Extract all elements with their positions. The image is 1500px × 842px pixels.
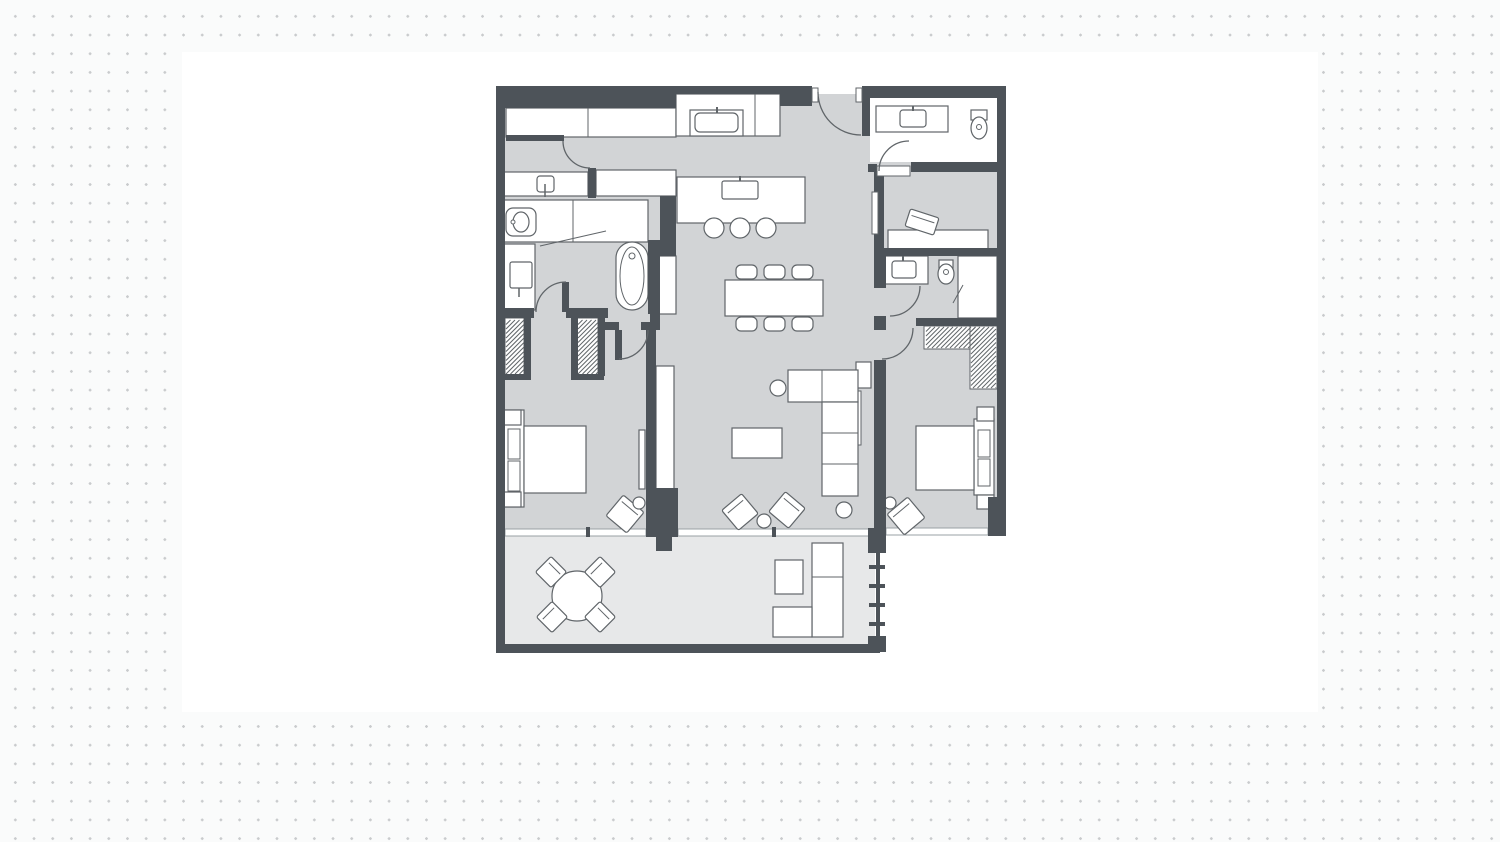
wall-powder-left (862, 98, 870, 136)
closet4-interior (970, 326, 997, 389)
kitchen-counter-left (506, 108, 676, 137)
wall-pillar (646, 488, 678, 537)
dining-chair (736, 265, 757, 279)
window-tick (772, 527, 776, 537)
balcony-screen-bottom-block (868, 636, 886, 652)
bed1-mattress (524, 426, 586, 493)
floor-lamp (770, 380, 786, 396)
cooktop-inner (695, 113, 738, 132)
balcony-screen-top-block (868, 533, 886, 553)
bed2-cushion (978, 459, 990, 486)
wall-closet2-right (598, 318, 605, 376)
bath2-sink (892, 261, 916, 278)
entry-door-frame (856, 88, 862, 102)
wall-laundry-div (588, 168, 596, 198)
wall-top-deep (496, 92, 676, 108)
floor-plan (0, 0, 1500, 842)
sofa-chaise (822, 402, 858, 496)
wall-closet2-foot (571, 374, 604, 380)
wall-bath1-door-right (566, 308, 608, 318)
wall-closet1-foot (503, 374, 531, 380)
wall-top-chunk (780, 92, 812, 106)
dining-chair (792, 317, 813, 331)
balcony-screen-rung (869, 565, 885, 569)
wall-top-right (862, 86, 1006, 98)
powder-sink (900, 110, 926, 127)
outdoor-side-table (775, 560, 803, 594)
bed2-nightstand (977, 407, 994, 421)
dining-chair (736, 317, 757, 331)
wall-hall-bath2 (874, 248, 997, 256)
shower-fixture (510, 262, 532, 288)
wall-bedroom1-door-right (641, 322, 656, 330)
wall-bedroom2-se-block (988, 497, 1006, 536)
side-table (757, 514, 771, 528)
tv-console (656, 366, 674, 490)
wall-hall-left (506, 135, 564, 141)
wall-terrace-bottom (496, 644, 880, 653)
balcony-screen-rung (869, 603, 885, 607)
bed1-cushion (508, 461, 520, 491)
wall-bath2-bottom (916, 318, 997, 326)
wall-bath1-door-left (505, 308, 534, 318)
wall-powder-bottom-left (868, 164, 877, 172)
wall-bedroom1-door-left (604, 322, 619, 330)
bar-stool (730, 218, 750, 238)
bedroom1-side-table (633, 497, 645, 509)
bed2-cushion (978, 430, 990, 457)
window-tick (586, 527, 590, 537)
bath2-shower (958, 256, 997, 318)
coffee-table (732, 428, 782, 458)
layer-windows (505, 527, 988, 537)
bed1-nightstand (504, 492, 521, 507)
bedroom1-door-leaf (615, 330, 622, 360)
bath2-toilet-flush (944, 270, 949, 275)
powder-door-leaf (877, 166, 910, 176)
bed1-nightstand (504, 410, 521, 425)
bar-stool (756, 218, 776, 238)
bathtub-drain (629, 253, 635, 259)
dining-chair (792, 265, 813, 279)
balcony-screen-rung (869, 584, 885, 588)
island-sink (722, 181, 758, 199)
hall-pocket-door (872, 192, 878, 234)
dining-chair (764, 317, 785, 331)
dining-chair (764, 265, 785, 279)
bar-stool (704, 218, 724, 238)
wall-bath1-east-lower (648, 240, 660, 314)
balcony-screen-rung (869, 622, 885, 626)
wall-powder-bottom (911, 162, 997, 172)
outdoor-sofa-long (812, 543, 843, 637)
bed2-mattress (916, 426, 974, 490)
entry-door-frame (812, 88, 818, 102)
sofa-back (788, 370, 858, 402)
wall-left (496, 86, 505, 652)
floor-lamp (836, 502, 852, 518)
hanger-mark (996, 388, 997, 389)
wall-closet2-left (571, 318, 578, 376)
hall-console-table (888, 230, 988, 250)
wall-bedroom2-west (874, 360, 886, 530)
bed1-cushion (508, 429, 520, 459)
wall-bath1-east-upper (660, 196, 676, 256)
bath1-door-leaf (562, 282, 569, 312)
wall-bedroom2-door-stub (874, 322, 886, 330)
tall-cabinet (596, 170, 676, 196)
wall-bath2-west (874, 256, 886, 288)
wall-pillar-stub (656, 537, 672, 551)
bath1-toilet-flush (511, 220, 515, 224)
outdoor-sofa-corner (773, 607, 812, 637)
dining-table (725, 280, 823, 316)
powder-toilet-flush (977, 125, 982, 130)
wall-right (997, 86, 1006, 536)
wall-closet1-right (524, 318, 531, 376)
wall-tv (646, 330, 656, 490)
bedroom1-tv (639, 430, 645, 489)
